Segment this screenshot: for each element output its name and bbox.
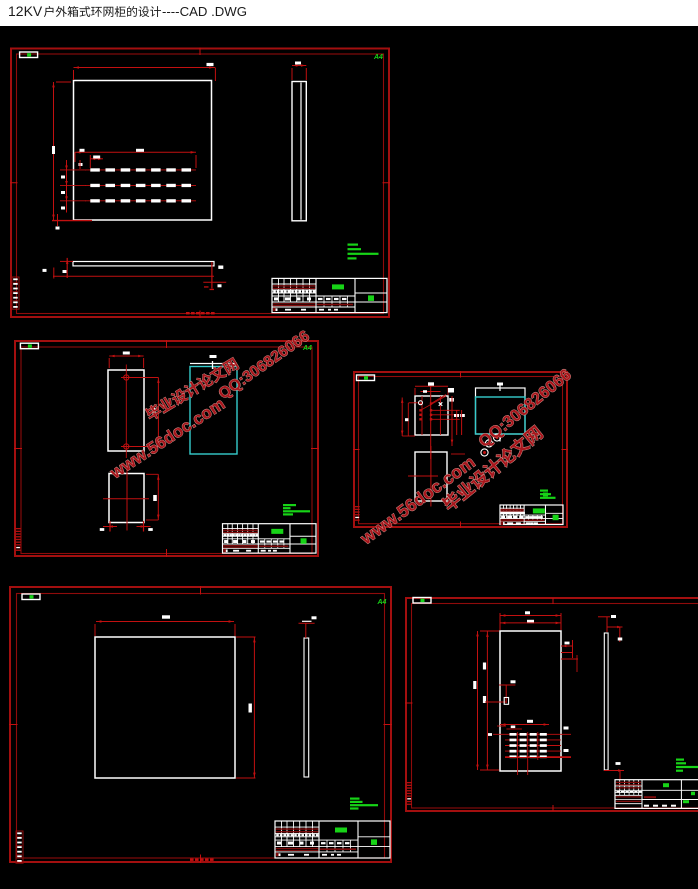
svg-text:A4: A4: [377, 599, 387, 606]
svg-text:----CAD .DWG: ----CAD .DWG: [162, 4, 247, 19]
svg-text:A4: A4: [373, 54, 383, 61]
svg-text:12KV: 12KV: [8, 3, 43, 19]
